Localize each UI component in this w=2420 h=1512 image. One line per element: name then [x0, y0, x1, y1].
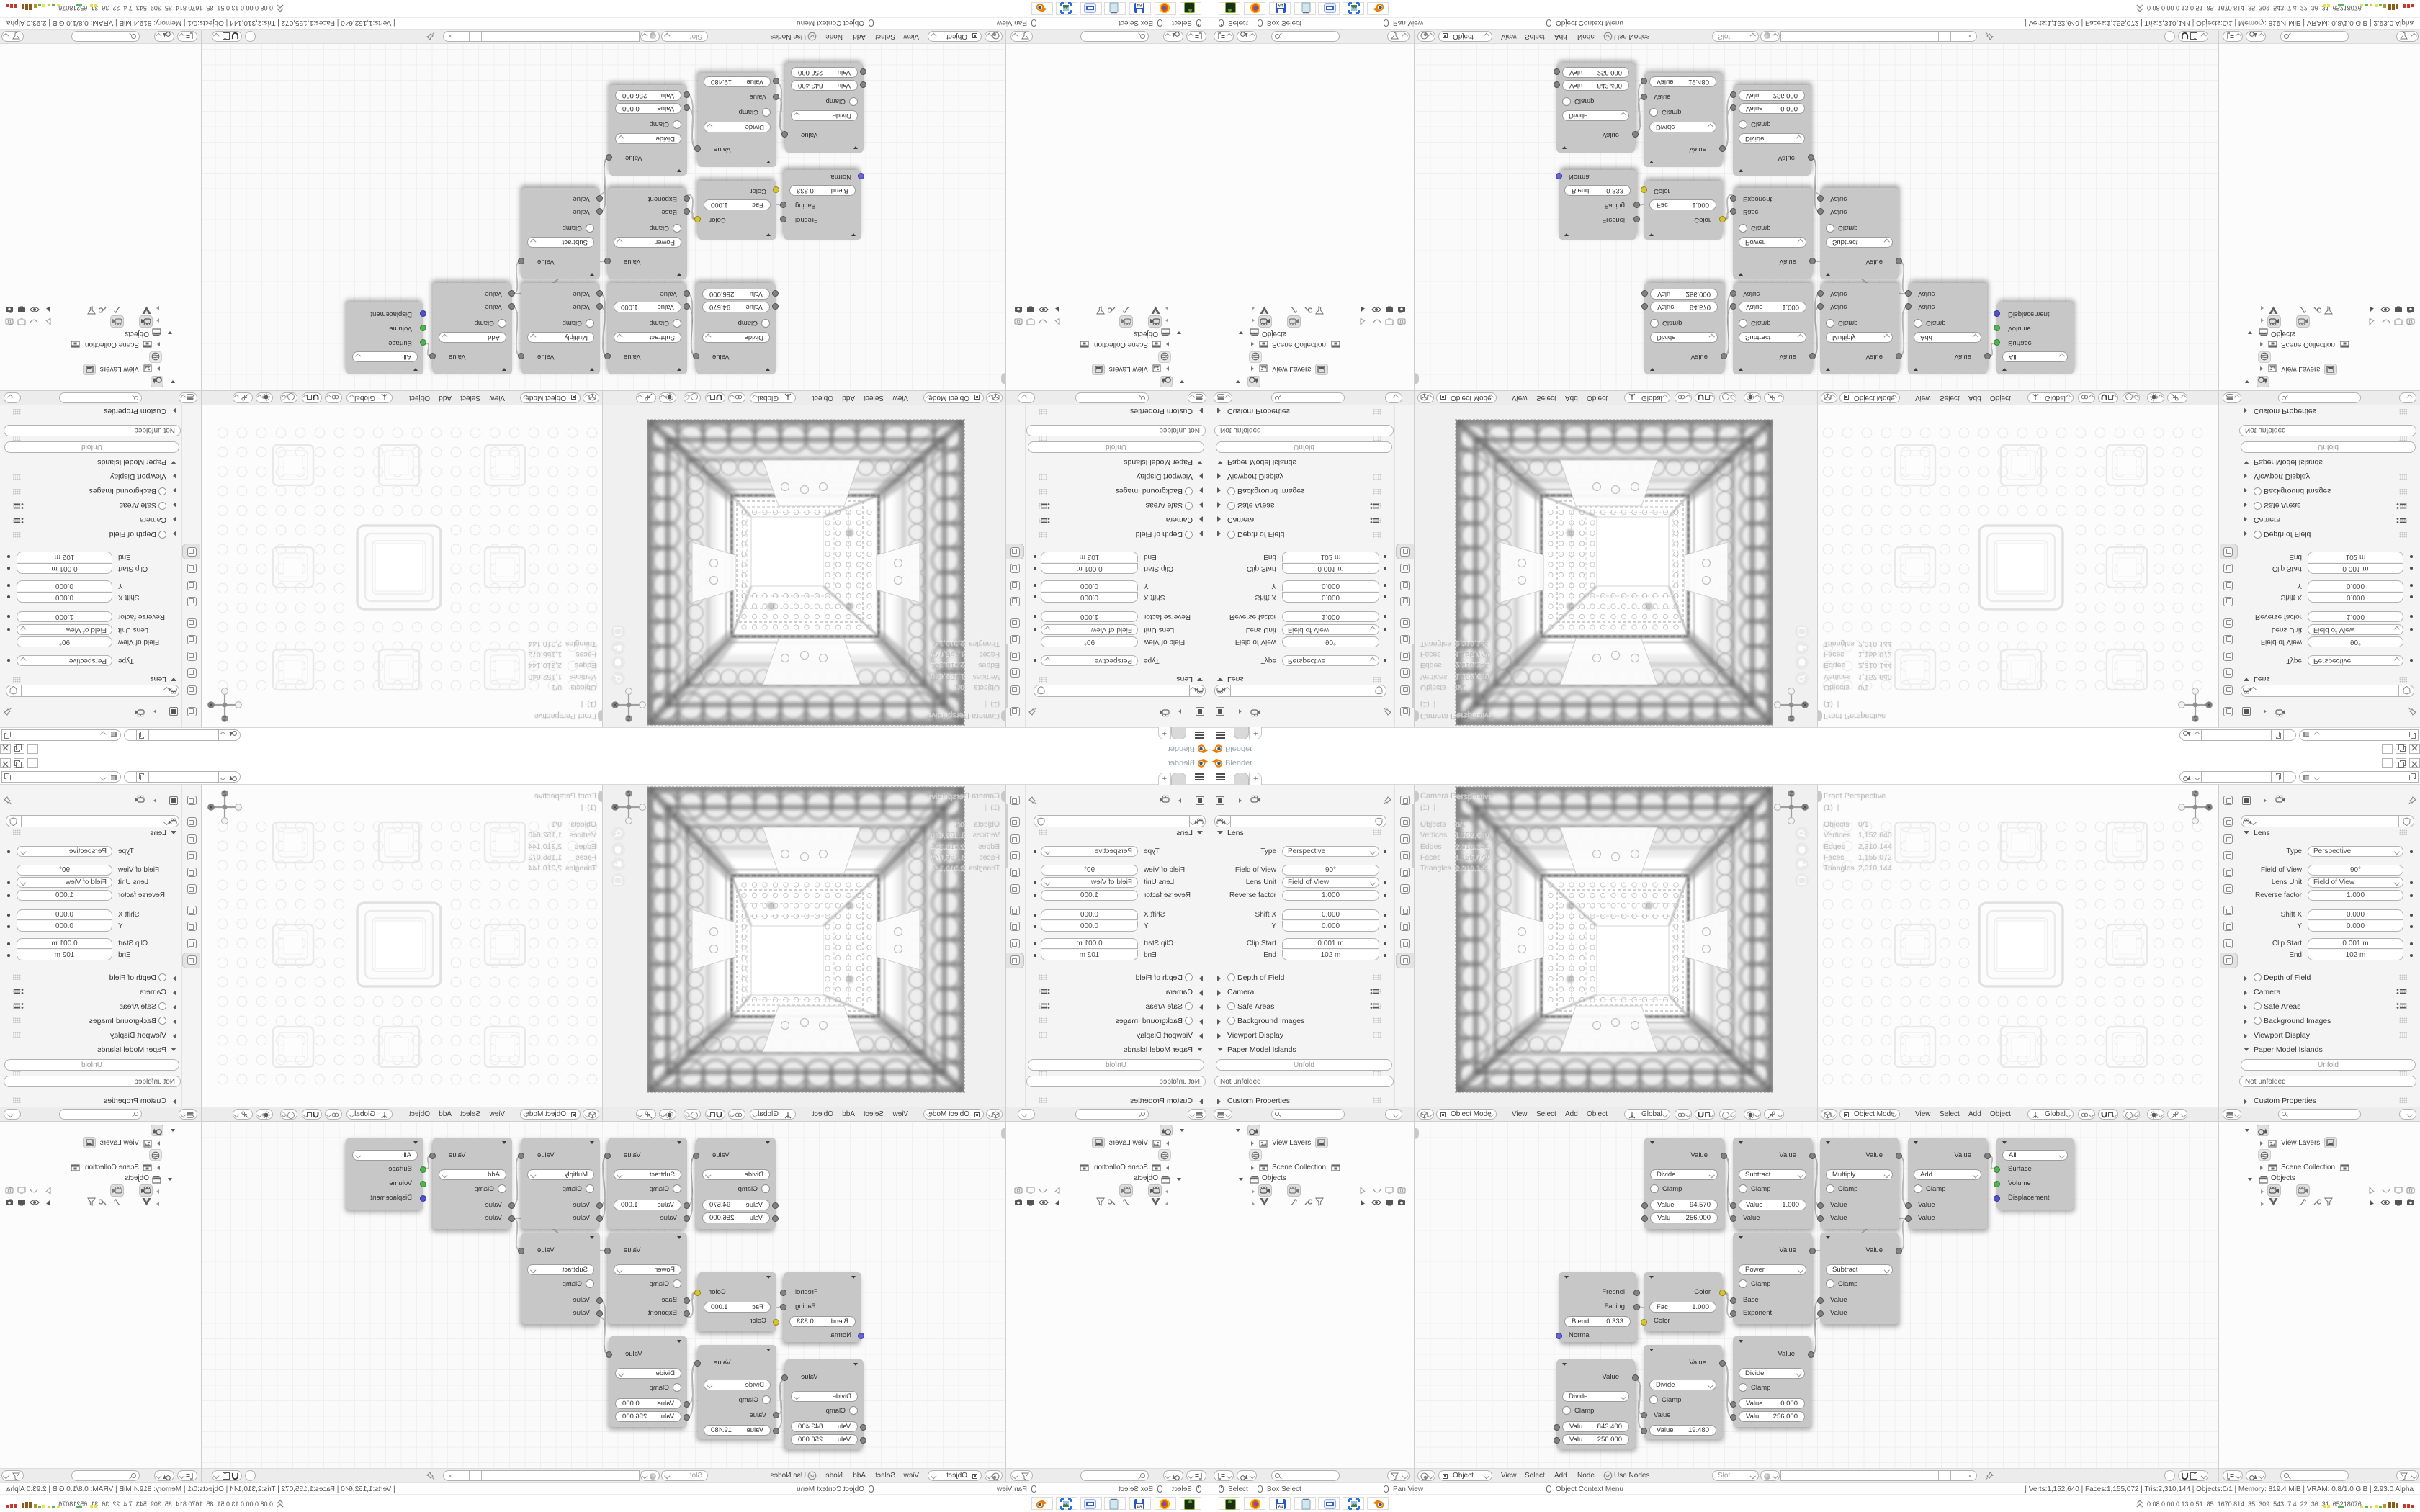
svg-text:X: X [1803, 806, 1807, 811]
svg-text:64: 64 [1137, 1506, 1142, 1510]
svg-text:Z: Z [2194, 716, 2197, 721]
svg-text:X: X [2208, 702, 2211, 707]
svg-text:X: X [613, 702, 617, 707]
svg-text:X: X [613, 806, 617, 811]
svg-text:64: 64 [1137, 2, 1142, 6]
svg-text:X: X [1803, 702, 1807, 707]
svg-text:Z: Z [2194, 792, 2197, 797]
svg-text:X: X [209, 702, 212, 707]
svg-text:X: X [209, 806, 212, 811]
svg-text:Z: Z [223, 716, 226, 721]
svg-text:64: 64 [1278, 2, 1283, 6]
svg-text:X: X [2208, 806, 2211, 811]
svg-text:Z: Z [627, 716, 630, 721]
svg-text:64: 64 [1278, 1506, 1283, 1510]
svg-text:Z: Z [627, 792, 630, 797]
svg-text:Z: Z [1790, 792, 1793, 797]
svg-text:Z: Z [223, 792, 226, 797]
svg-text:Z: Z [1790, 716, 1793, 721]
